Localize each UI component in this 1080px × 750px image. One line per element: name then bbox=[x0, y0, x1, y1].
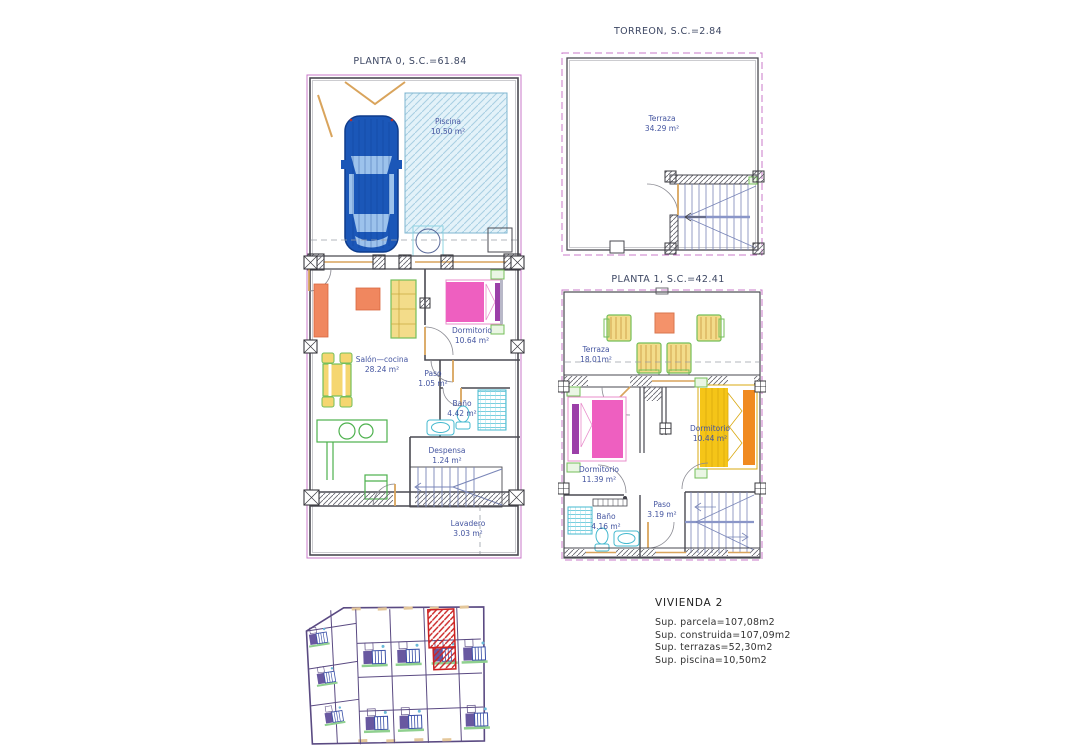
torreon-drawing bbox=[558, 45, 766, 260]
room-name: Lavadero bbox=[428, 519, 508, 529]
torreon-title: TORREON, S.C.=2.84 bbox=[588, 26, 748, 37]
room-label-dormitorio-der: Dormitorio 10.44 m² bbox=[670, 424, 750, 444]
room-area: 11.39 m² bbox=[559, 475, 639, 485]
room-area: 1.05 m² bbox=[408, 379, 458, 389]
room-label-terraza1: Terraza 18.01m² bbox=[566, 345, 626, 365]
sink-icon bbox=[427, 420, 454, 435]
pillar bbox=[420, 298, 430, 308]
summary-line-parcela: Sup. parcela=107,08m2 bbox=[655, 617, 791, 630]
sink-icon-p1 bbox=[614, 531, 639, 546]
planta0-title: PLANTA 0, S.C.=61.84 bbox=[330, 56, 490, 67]
room-name: Baño bbox=[437, 399, 487, 409]
room-name: Piscina bbox=[413, 117, 483, 127]
summary-block: VIVIENDA 2 Sup. parcela=107,08m2 Sup. co… bbox=[655, 597, 791, 667]
room-area: 34.29 m² bbox=[632, 124, 692, 134]
room-area: 4.42 m² bbox=[437, 409, 487, 419]
site-plan bbox=[296, 598, 496, 750]
room-area: 10.50 m² bbox=[413, 127, 483, 137]
chimney bbox=[610, 241, 624, 253]
room-label-bano0: Baño 4.42 m² bbox=[437, 399, 487, 419]
room-name: Dormitorio bbox=[432, 326, 512, 336]
room-name: Terraza bbox=[566, 345, 626, 355]
room-name: Paso bbox=[408, 369, 458, 379]
room-label-dormitorio0: Dormitorio 10.64 m² bbox=[432, 326, 512, 346]
room-label-terraza-torreon: Terraza 34.29 m² bbox=[632, 114, 692, 134]
room-name: Salón—cocina bbox=[337, 355, 427, 365]
summary-line-construida: Sup. construida=107,09m2 bbox=[655, 630, 791, 643]
summary-line-piscina: Sup. piscina=10,50m2 bbox=[655, 655, 791, 668]
bath-shelf bbox=[593, 499, 627, 506]
summary-title: VIVIENDA 2 bbox=[655, 597, 791, 609]
planta0-drawing bbox=[303, 70, 525, 562]
room-label-piscina: Piscina 10.50 m² bbox=[413, 117, 483, 137]
room-name: Paso bbox=[632, 500, 692, 510]
room-area: 4.16 m² bbox=[581, 522, 631, 532]
rug bbox=[356, 288, 380, 310]
bed-double bbox=[446, 270, 504, 334]
drawing-sheet: PLANTA 0, S.C.=61.84 bbox=[0, 0, 1080, 750]
room-name: Dormitorio bbox=[670, 424, 750, 434]
room-name: Terraza bbox=[632, 114, 692, 124]
room-label-dormitorio-izq: Dormitorio 11.39 m² bbox=[559, 465, 639, 485]
room-label-paso0: Paso 1.05 m² bbox=[408, 369, 458, 389]
pool bbox=[405, 93, 507, 233]
room-label-paso1: Paso 3.19 m² bbox=[632, 500, 692, 520]
bed-left bbox=[567, 387, 626, 472]
car-icon bbox=[341, 116, 402, 252]
room-label-lavadero: Lavadero 3.03 m² bbox=[428, 519, 508, 539]
room-area: 18.01m² bbox=[566, 355, 626, 365]
room-area: 10.44 m² bbox=[670, 434, 750, 444]
summary-line-terrazas: Sup. terrazas=52,30m2 bbox=[655, 642, 791, 655]
planta1-title: PLANTA 1, S.C.=42.41 bbox=[588, 274, 748, 285]
room-area: 10.64 m² bbox=[432, 336, 512, 346]
room-area: 3.03 m² bbox=[428, 529, 508, 539]
sofa bbox=[391, 280, 416, 338]
room-name: Baño bbox=[581, 512, 631, 522]
room-name: Despensa bbox=[417, 446, 477, 456]
room-area: 1.24 m² bbox=[417, 456, 477, 466]
room-area: 3.19 m² bbox=[632, 510, 692, 520]
room-label-despensa: Despensa 1.24 m² bbox=[417, 446, 477, 466]
sideboard bbox=[314, 284, 328, 337]
room-label-bano1: Baño 4.16 m² bbox=[581, 512, 631, 532]
room-name: Dormitorio bbox=[559, 465, 639, 475]
